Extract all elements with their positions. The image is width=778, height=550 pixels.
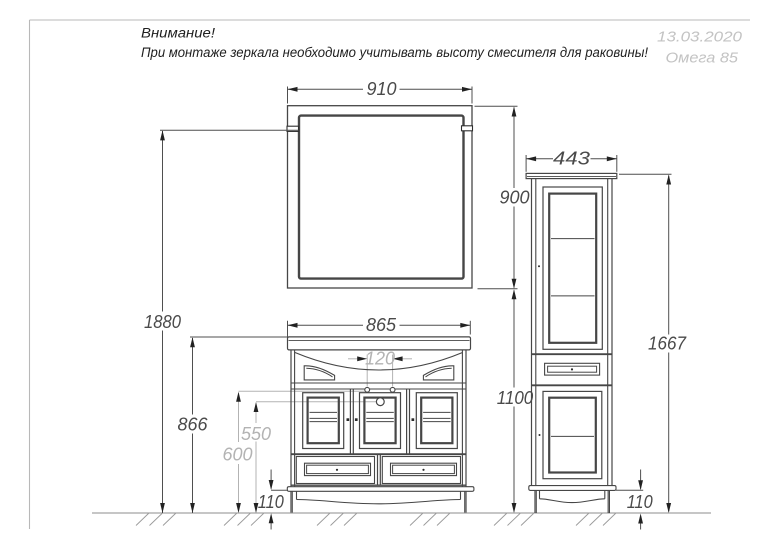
svg-text:120: 120 <box>365 348 395 368</box>
svg-text:900: 900 <box>499 188 529 208</box>
svg-text:Внимание!: Внимание! <box>141 26 215 42</box>
svg-text:910: 910 <box>366 79 396 99</box>
svg-text:110: 110 <box>258 492 284 512</box>
svg-text:865: 865 <box>366 315 397 335</box>
svg-text:13.03.2020: 13.03.2020 <box>657 29 743 46</box>
svg-text:600: 600 <box>222 444 252 464</box>
svg-text:550: 550 <box>241 424 271 444</box>
svg-text:Омега 85: Омега 85 <box>666 50 739 67</box>
svg-text:443: 443 <box>553 149 590 169</box>
svg-text:1100: 1100 <box>497 388 534 408</box>
svg-text:1880: 1880 <box>144 312 181 332</box>
svg-text:866: 866 <box>177 415 208 435</box>
svg-text:1667: 1667 <box>648 334 687 354</box>
svg-text:110: 110 <box>627 492 653 512</box>
svg-text:При монтаже зеркала необходимо: При монтаже зеркала необходимо учитывать… <box>141 45 648 61</box>
